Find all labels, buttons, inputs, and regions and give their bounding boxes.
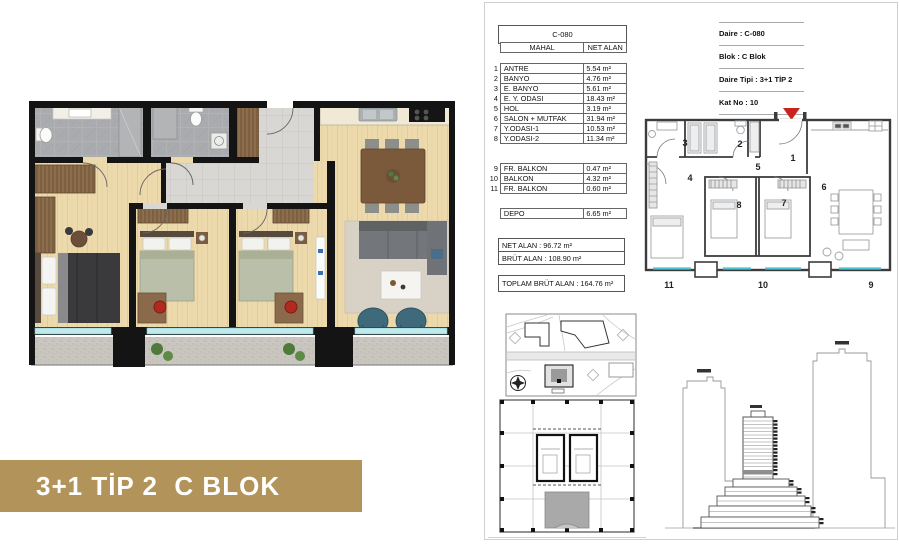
table-row: 11FR. BALKON0.60 m² [488,183,627,194]
balcony-rows-group: 9FR. BALKON0.47 m² 10BALKON4.32 m² 11FR.… [488,163,627,194]
toilet [40,128,52,143]
table-column-headers: MAHAL NET ALAN [488,42,627,53]
balcony-pier-2 [809,262,831,277]
room-name: Y.ODASI-2 [500,133,584,144]
row-no: 8 [488,133,500,144]
svg-text:8: 8 [736,200,741,210]
site-plan [505,313,637,397]
table-row: 8Y.ODASI-211.34 m² [488,133,627,144]
svg-text:3: 3 [682,138,687,148]
bedroom1-wardrobe [138,207,188,223]
hall-floor [166,163,260,203]
balcony-floor [31,337,453,365]
svg-text:6: 6 [821,182,826,192]
compass-icon [511,376,526,391]
area-table-column: C-080 MAHAL NET ALAN 1ANTRE5.54 m² 2BANY… [486,0,646,544]
svg-text:4: 4 [687,173,692,183]
key-plan: 3 2 1 5 4 6 8 7 11 10 9 [643,104,893,294]
master-wardrobe [35,165,95,193]
apartment-floor-plan [27,99,459,369]
plate-ground-line [488,537,646,538]
brut-total-box: BRÜT ALAN : 108.90 m² [498,251,625,265]
room-area: 11.34 m² [583,133,627,144]
subject-tower [743,411,778,479]
svg-text:2: 2 [737,139,742,149]
master-wardrobe-2 [35,197,55,253]
row-no: 11 [488,183,500,194]
svg-text:11: 11 [664,280,674,290]
svg-text:5: 5 [755,162,760,172]
col-netalan: NET ALAN [583,42,627,53]
floorplan-sheet: 3+1 TİP 2 C BLOK C-080 MAHAL NET ALAN 1A… [0,0,899,544]
master-table [71,231,87,247]
table-row: DEPO6.65 m² [488,208,627,219]
elevation-labels [697,341,849,408]
highlighted-floor [743,470,773,475]
floor-plate-plan [497,397,637,539]
info-daire-tipi: Daire Tipi : 3+1 TİP 2 [719,68,804,91]
depo-row-group: DEPO6.65 m² [488,208,627,219]
desk-chair-red-2 [285,301,297,313]
shower-b [153,107,177,139]
balcony-pier-1 [695,262,717,277]
toilet-b [191,112,202,126]
bedroom2-console [316,237,325,299]
svg-text:7: 7 [781,198,786,208]
building-elevation [663,333,897,533]
title-banner: 3+1 TİP 2 C BLOK [0,460,362,512]
room-name: DEPO [500,208,584,219]
room-area: 0.60 m² [583,183,627,194]
windows [35,328,447,334]
desk-chair-red [154,301,166,313]
unit-info-box: Daire : C-080 Blok : C Blok Daire Tipi :… [719,22,804,115]
unit-location-highlight [545,492,589,528]
bedroom2-wardrobe [273,207,309,223]
podium-steps [701,479,819,528]
master-bed [35,253,120,323]
row-no [488,208,500,219]
grand-total-box: TOPLAM BRÜT ALAN : 164.76 m² [498,275,625,292]
svg-text:10: 10 [758,280,768,290]
info-blok: Blok : C Blok [719,45,804,68]
closet [237,107,259,159]
info-daire: Daire : C-080 [719,22,804,45]
banner-title: 3+1 TİP 2 C BLOK [0,471,280,502]
room-area: 6.65 m² [583,208,627,219]
col-mahal: MAHAL [500,42,584,53]
coffee-table [381,271,421,299]
dining-set [361,139,425,213]
washer [211,133,227,149]
room-name: FR. BALKON [500,183,584,194]
net-total-box: NET ALAN : 96.72 m² [498,238,625,252]
entry-floor [259,107,314,203]
svg-text:1: 1 [790,153,795,163]
room-rows-group: 1ANTRE5.54 m² 2BANYO4.76 m² 3E. BANYO5.6… [488,63,627,144]
entrance-marker-icon [783,108,800,120]
svg-text:9: 9 [868,280,873,290]
